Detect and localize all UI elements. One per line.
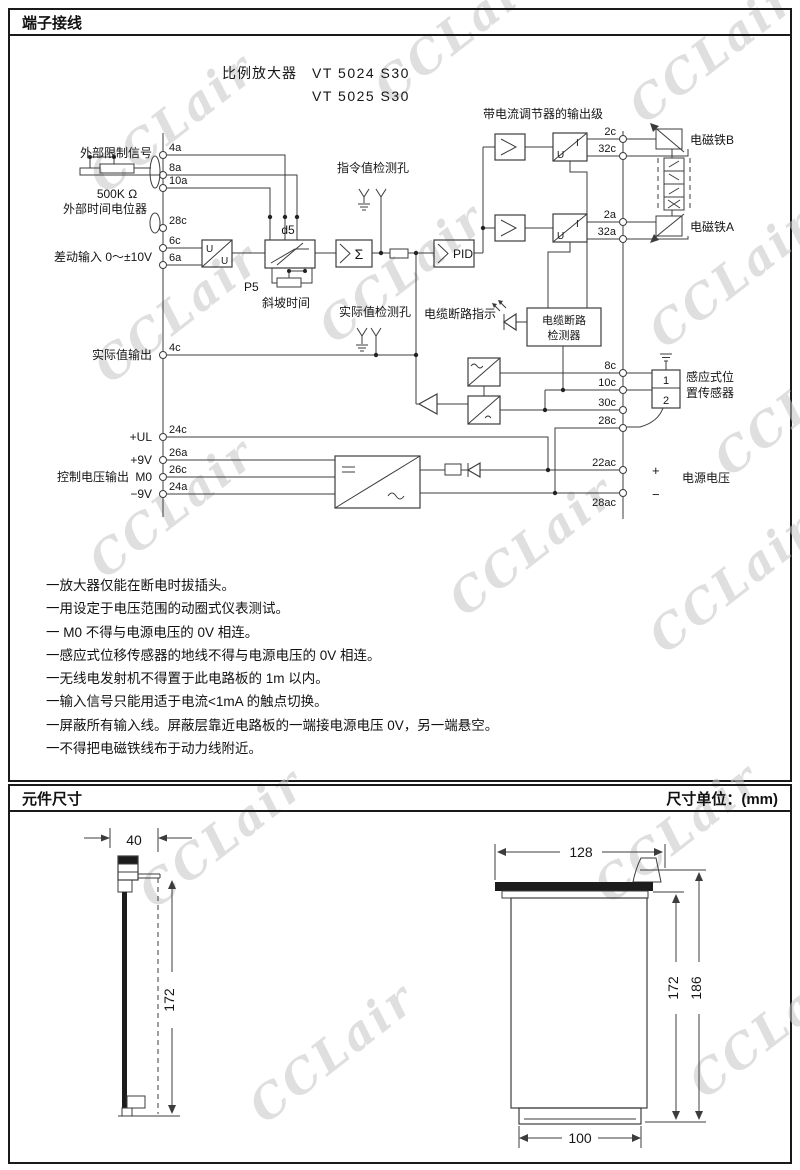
resistor-value-label: 500K Ω	[97, 187, 137, 201]
terminal-4c: 4c	[169, 342, 181, 354]
note-item: 一感应式位移传感器的地线不得与电源电压的 0V 相连。	[46, 644, 756, 667]
output-stage-label: 带电流调节器的输出级	[483, 106, 603, 121]
terminal-26c: 26c	[169, 464, 187, 476]
ui2-i-letter: I	[576, 219, 579, 230]
section1-title: 端子接线	[22, 12, 82, 33]
device-label: 比例放大器	[222, 65, 297, 81]
cable-break-detector-block: 电缆断路 检测器	[527, 308, 601, 346]
external-limit-signal-label: 外部限制信号	[80, 145, 152, 160]
terminal-2a: 2a	[604, 209, 617, 221]
actual-test-hole-label: 实际值检测孔	[339, 304, 411, 319]
demodulator-block	[468, 396, 500, 424]
card-width-dim: 40	[126, 832, 142, 848]
pid-label: PID	[453, 247, 473, 261]
terminal-22ac: 22ac	[592, 457, 616, 469]
power-labels: + − 电源电压	[652, 463, 730, 502]
actual-value-output-label: 实际值输出	[92, 347, 152, 362]
terminal-6c: 6c	[169, 235, 181, 247]
model-number-1: VT 5024 S30	[312, 65, 410, 81]
body-height-dim: 172	[665, 976, 681, 1000]
note-item: 一放大器仅能在断电时拔插头。	[46, 574, 756, 597]
sensor-label-line1: 感应式位	[686, 369, 734, 384]
oscillator-block	[468, 358, 500, 386]
terminal-24c: 24c	[169, 424, 187, 436]
terminal-8c: 8c	[604, 360, 616, 372]
sensor-pin2: 2	[663, 395, 669, 407]
dcdc-converter-block	[335, 456, 420, 508]
notes-list: 一放大器仅能在断电时拔插头。 一用设定于电压范围的动圈式仪表测试。 一 M0 不…	[46, 574, 756, 760]
ramp-time-label: 斜坡时间	[262, 296, 310, 310]
card-height-dim: 172	[161, 988, 177, 1012]
p5-potentiometer: P5 斜坡时间	[244, 278, 310, 310]
module-front-view: 128 100 172 18	[495, 844, 706, 1148]
fuse-symbol	[445, 464, 461, 475]
watermark-text: CCLair	[704, 324, 800, 487]
note-item: 一用设定于电压范围的动圈式仪表测试。	[46, 597, 756, 620]
sensor-label-line2: 置传感器	[686, 385, 734, 400]
plus-9v-label: +9V	[130, 453, 152, 467]
terminal-28ac: 28ac	[592, 497, 616, 509]
proportional-valve-symbol	[658, 149, 690, 216]
m0-label: M0	[135, 470, 152, 484]
cable-break-indicator: 电缆断路指示	[424, 300, 516, 330]
terminal-6a: 6a	[169, 252, 182, 264]
output-stage: 带电流调节器的输出级 U I U I	[483, 106, 603, 242]
terminal-26a: 26a	[169, 447, 188, 459]
section2-title: 元件尺寸	[22, 788, 82, 809]
plus-ul-label: +UL	[130, 430, 153, 444]
solenoid-b-label: 电磁铁B	[690, 132, 734, 147]
terminal-4a: 4a	[169, 142, 182, 154]
terminal-10a: 10a	[169, 175, 188, 187]
external-time-pot-label: 外部时间电位器	[63, 201, 147, 216]
command-test-jacks: 指令值检测孔	[337, 160, 409, 210]
model-number-2: VT 5025 S30	[312, 88, 410, 104]
connector-width-dim: 100	[568, 1130, 592, 1146]
detector-label-line2: 检测器	[548, 328, 581, 342]
note-item: 一无线电发射机不得置于此电路板的 1m 以内。	[46, 667, 756, 690]
watermark-text: CCLair	[129, 756, 317, 919]
watermark-text: CCLair	[309, 191, 497, 354]
datasheet-page: 端子接线 元件尺寸 尺寸单位：(mm) 一放大器仅能在断电时拔插头。 一用设定于…	[0, 0, 800, 1170]
ui1-i-letter: I	[576, 138, 579, 149]
feedback-amplifier	[419, 394, 437, 414]
sigma-symbol: Σ	[355, 246, 364, 262]
terminal-8a: 8a	[169, 162, 182, 174]
panel-width-dim: 128	[569, 844, 593, 860]
command-test-hole-label: 指令值检测孔	[337, 160, 409, 175]
inductive-position-sensor: 1 2 感应式位 置传感器	[652, 354, 734, 408]
uu-top-letter: U	[206, 244, 213, 255]
watermarks: CCLair CCLair CCLair CCLair CCLair CCLai…	[79, 0, 800, 1134]
terminal-10c: 10c	[598, 377, 616, 389]
plus-sign: +	[652, 463, 660, 478]
detector-label-line1: 电缆断路	[542, 313, 586, 327]
summing-block: Σ	[336, 240, 372, 267]
solenoid-a-label: 电磁铁A	[690, 219, 734, 234]
control-voltage-output-label: 控制电压输出	[57, 469, 129, 484]
ui1-u-letter: U	[557, 150, 564, 161]
d5-label: d5	[281, 223, 295, 237]
note-item: 一 M0 不得与电源电压的 0V 相连。	[46, 621, 756, 644]
dimension-unit-label: 尺寸单位：(mm)	[666, 788, 778, 809]
cable-break-indicator-label: 电缆断路指示	[424, 306, 496, 321]
p5-label: P5	[244, 280, 259, 294]
differential-input-label: 差动输入 0～±10V	[54, 249, 152, 264]
minus-9v-label: −9V	[130, 487, 152, 501]
ui2-u-letter: U	[557, 231, 564, 242]
ramp-generator-block: d5	[265, 223, 315, 268]
diode-symbol	[468, 463, 480, 477]
solenoid-b: 电磁铁B	[650, 123, 734, 152]
power-voltage-label: 电源电压	[682, 471, 730, 485]
total-height-dim: 186	[688, 976, 704, 1000]
terminal-2c: 2c	[604, 126, 616, 138]
terminal-28c-left: 28c	[169, 215, 187, 227]
uu-bottom-letter: U	[221, 256, 228, 267]
minus-sign: −	[652, 487, 660, 502]
terminal-28c-right: 28c	[598, 415, 616, 427]
watermark-text: CCLair	[239, 971, 427, 1134]
note-item: 一屏蔽所有输入线。屏蔽层靠近电路板的一端接电源电压 0V，另一端悬空。	[46, 714, 756, 737]
note-item: 一不得把电磁铁线布于动力线附近。	[46, 737, 756, 760]
sensor-pin1: 1	[663, 375, 669, 387]
terminal-32a: 32a	[598, 226, 617, 238]
note-item: 一输入信号只能用适于电流<1mA 的触点切换。	[46, 690, 756, 713]
watermark-text: CCLair	[679, 946, 800, 1109]
terminal-30c: 30c	[598, 397, 616, 409]
section1-header: 端子接线	[8, 8, 792, 36]
terminal-24a: 24a	[169, 481, 188, 493]
terminal-32c: 32c	[598, 143, 616, 155]
section2-header: 元件尺寸 尺寸单位：(mm)	[8, 784, 792, 812]
